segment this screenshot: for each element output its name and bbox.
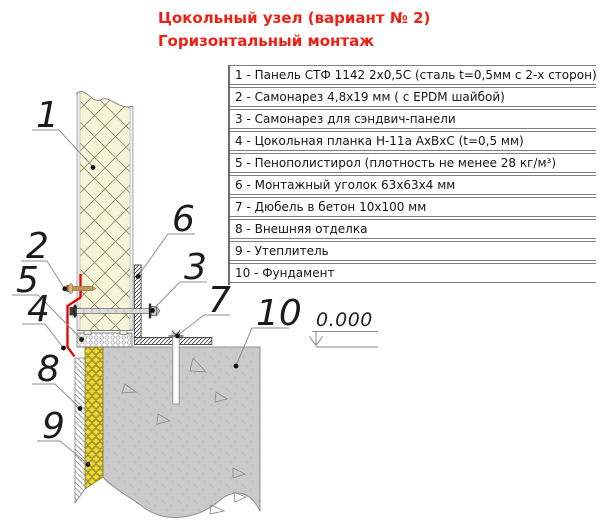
callout-8: 8 [37, 349, 60, 390]
callout-6: 6 [172, 199, 195, 240]
callout-9: 9 [42, 406, 65, 447]
callout-10: 10 [256, 293, 302, 334]
insulation-layer [85, 347, 103, 489]
foundation-concrete [103, 347, 260, 517]
callout-3: 3 [184, 247, 207, 288]
drawing-sheet: Цокольный узел (вариант № 2) Горизонталь… [0, 0, 600, 522]
callout-4: 4 [27, 289, 50, 330]
level-mark: 0.000 [310, 309, 379, 347]
sandwich-panel [74, 70, 134, 335]
callout-7: 7 [208, 280, 231, 321]
elevation-value: 0.000 [316, 309, 373, 331]
detail-drawing: 0.000 [0, 0, 600, 522]
callout-1: 1 [36, 95, 59, 136]
panel-bottom-lip [84, 331, 91, 335]
panel-bottom-lip [120, 331, 127, 335]
panel-skin-right [130, 88, 133, 330]
foam-strip [77, 333, 132, 347]
external-finish-layer [75, 358, 85, 503]
